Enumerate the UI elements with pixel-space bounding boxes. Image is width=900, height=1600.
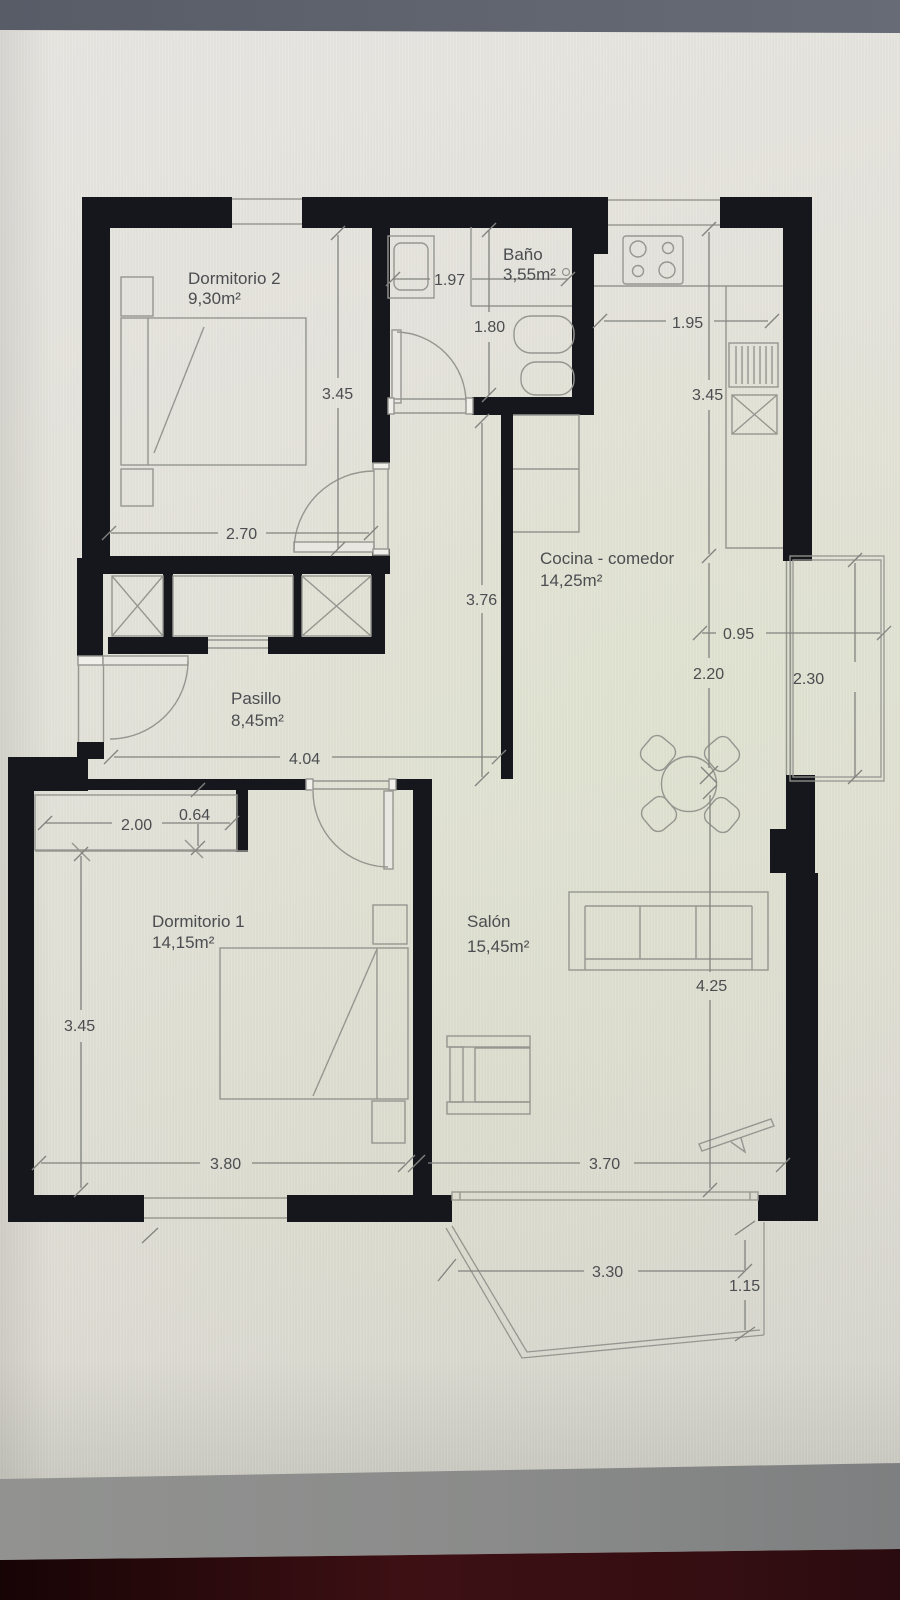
svg-text:3.76: 3.76: [466, 592, 497, 609]
svg-text:3,55m²: 3,55m²: [503, 265, 556, 284]
svg-text:1.80: 1.80: [474, 319, 505, 336]
svg-text:15,45m²: 15,45m²: [467, 937, 530, 956]
svg-text:14,25m²: 14,25m²: [540, 571, 603, 590]
svg-text:4.04: 4.04: [289, 751, 320, 768]
svg-text:Dormitorio 2: Dormitorio 2: [188, 269, 281, 288]
svg-text:1.15: 1.15: [729, 1278, 760, 1295]
svg-text:Pasillo: Pasillo: [231, 689, 281, 708]
svg-text:14,15m²: 14,15m²: [152, 933, 215, 952]
svg-text:Baño: Baño: [503, 245, 543, 264]
svg-text:3.80: 3.80: [210, 1156, 241, 1173]
svg-text:3.45: 3.45: [64, 1018, 95, 1035]
svg-text:3.70: 3.70: [589, 1156, 620, 1173]
svg-text:9,30m²: 9,30m²: [188, 289, 241, 308]
svg-text:8,45m²: 8,45m²: [231, 711, 284, 730]
svg-text:4.25: 4.25: [696, 978, 727, 995]
svg-text:Salón: Salón: [467, 912, 510, 931]
svg-text:3.45: 3.45: [692, 387, 723, 404]
svg-text:1.95: 1.95: [672, 315, 703, 332]
svg-text:2.70: 2.70: [226, 526, 257, 543]
svg-text:2.00: 2.00: [121, 817, 152, 834]
svg-text:Dormitorio 1: Dormitorio 1: [152, 912, 245, 931]
svg-text:3.45: 3.45: [322, 386, 353, 403]
svg-text:2.30: 2.30: [793, 671, 824, 688]
svg-text:3.30: 3.30: [592, 1264, 623, 1281]
svg-text:0.64: 0.64: [179, 807, 210, 824]
svg-text:2.20: 2.20: [693, 666, 724, 683]
svg-text:0.95: 0.95: [723, 626, 754, 643]
svg-text:1.97: 1.97: [434, 272, 465, 289]
svg-text:Cocina - comedor: Cocina - comedor: [540, 549, 675, 568]
